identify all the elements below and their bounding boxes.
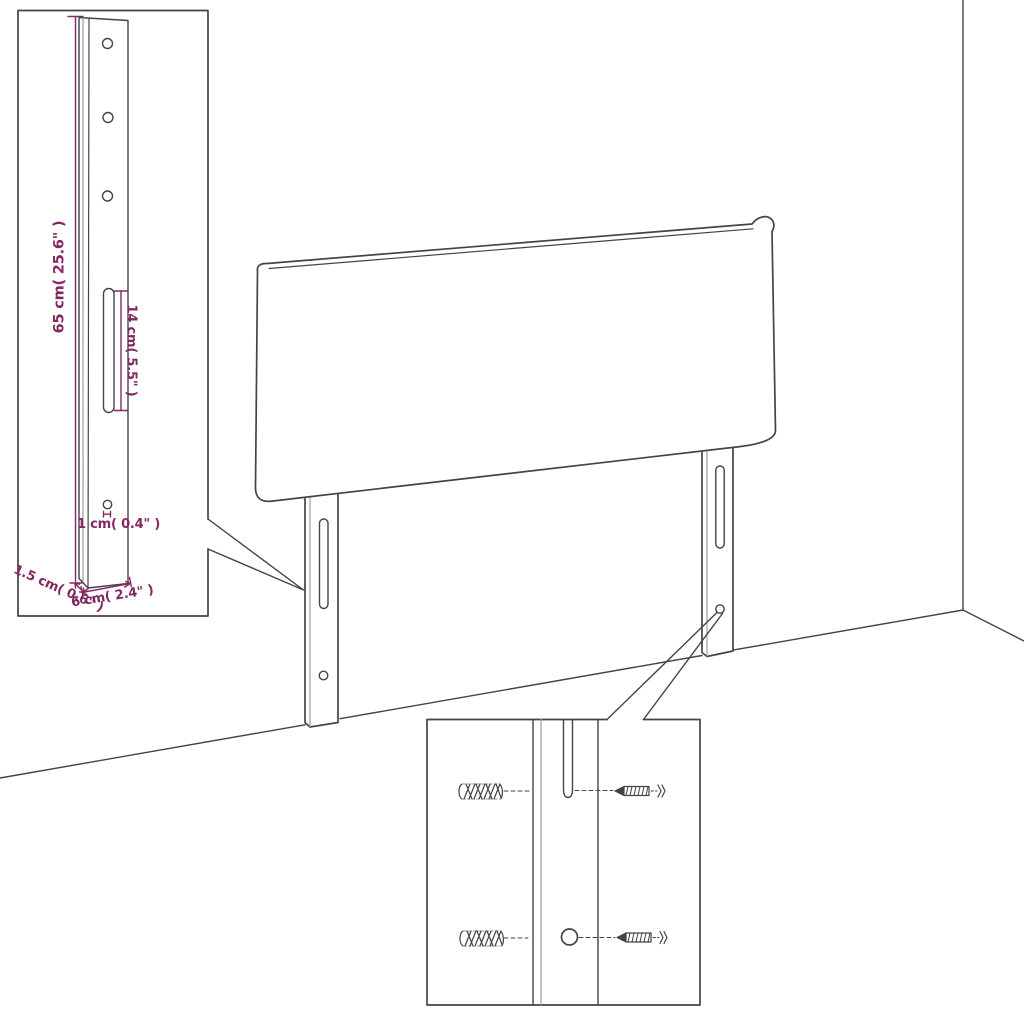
bracket-hole-top: [103, 39, 113, 49]
left-leg-slot: [320, 519, 329, 609]
right-leg-slot: [716, 466, 724, 548]
bracket-hole-middle: [103, 113, 113, 123]
left-leg: [305, 492, 338, 727]
headboard-dimension-diagram: 65 cm( 25.6" ) 14 cm( 5.5" ) 1 cm( 0.4" …: [0, 0, 1024, 1024]
mounting-inset: [427, 613, 723, 1006]
dim-slot-label: 14 cm( 5.5" ): [124, 304, 139, 396]
left-leg-hole: [319, 671, 328, 680]
bracket-callout-lines: [208, 519, 304, 590]
bracket-slot: [104, 289, 115, 413]
right-leg: [702, 444, 733, 657]
headboard: [255, 217, 775, 502]
mounting-hole: [562, 929, 578, 945]
bracket-small-hole: [103, 500, 111, 508]
bracket-hole-bottom: [103, 191, 113, 201]
headboard-panel: [255, 217, 775, 502]
floor-line-right: [963, 610, 1024, 641]
dim-height-label: 65 cm( 25.6" ): [52, 221, 68, 334]
dim-hole-label: 1 cm( 0.4" ): [77, 517, 160, 532]
